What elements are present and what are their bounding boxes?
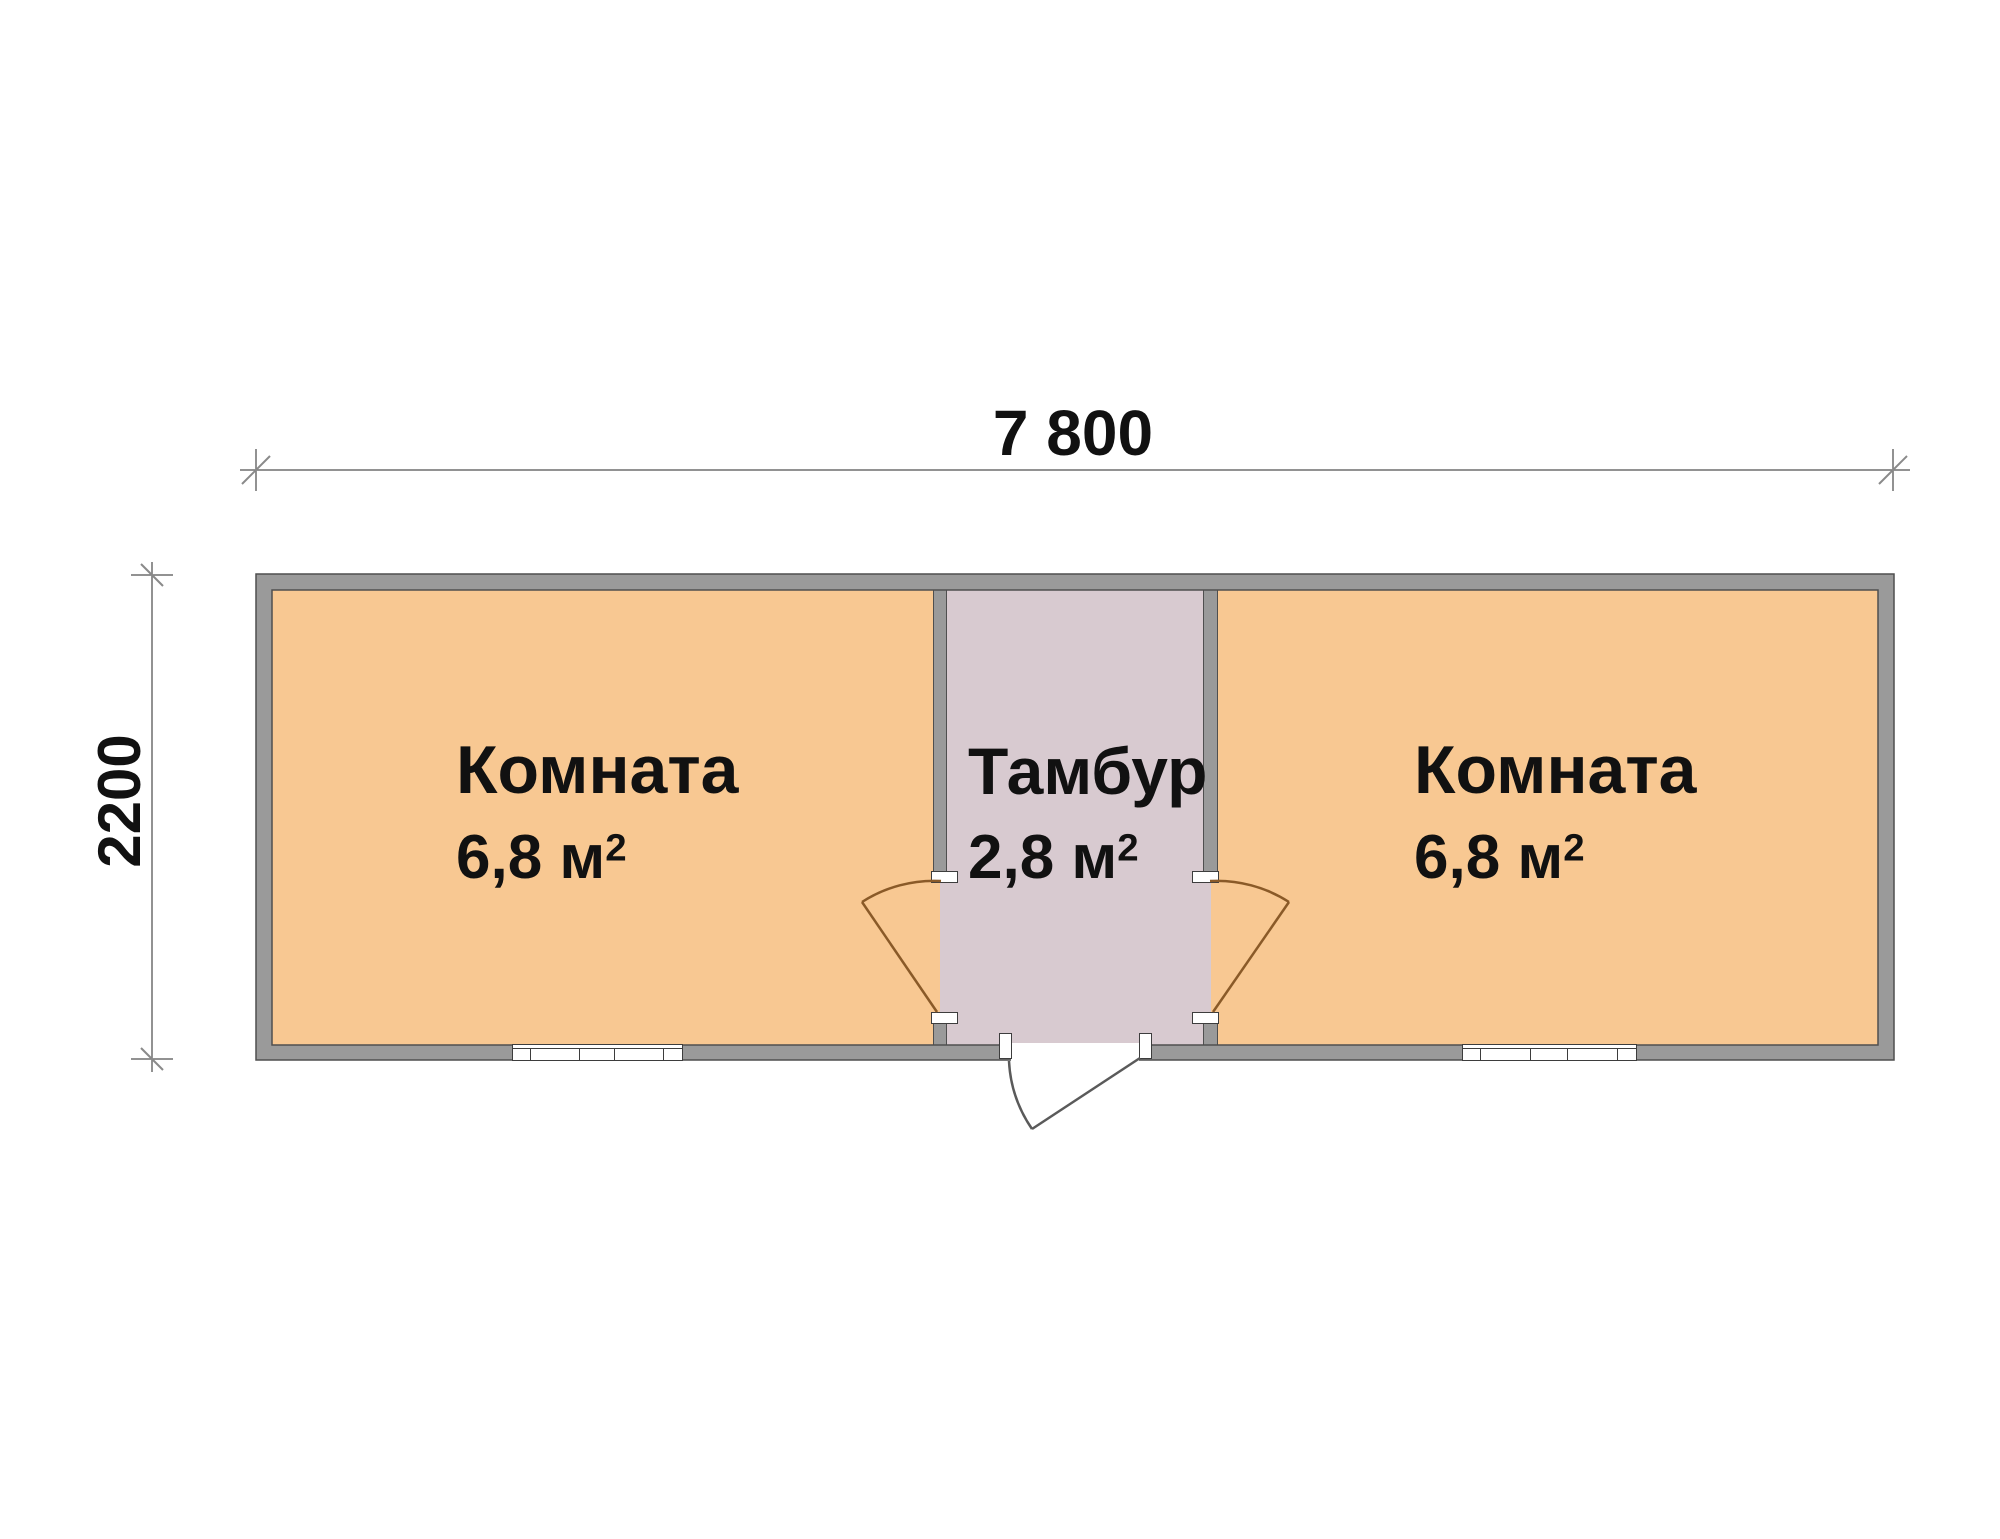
- window-glass-line: [513, 1048, 682, 1049]
- dimension-tick: [141, 564, 163, 586]
- window-mullion: [614, 1048, 615, 1060]
- room-right-name: Комната: [1414, 736, 1696, 804]
- area-superscript: 2: [605, 830, 626, 868]
- vestibule-floor: [940, 590, 1211, 1045]
- room-right-floor: [1211, 590, 1878, 1045]
- door-jamb: [999, 1033, 1012, 1059]
- area-superscript: 2: [1563, 830, 1584, 868]
- door-jamb: [1192, 1012, 1219, 1024]
- window-mullion: [663, 1048, 664, 1060]
- window-mullion: [1617, 1048, 1618, 1060]
- room-left-area: 6,8 м2: [456, 827, 627, 889]
- door-leaf: [1032, 1058, 1140, 1129]
- room-right-area: 6,8 м2: [1414, 827, 1585, 889]
- dimension-tick: [242, 456, 270, 484]
- area-superscript: 2: [1117, 830, 1138, 868]
- dimension-tick: [141, 1048, 163, 1070]
- entry-door-opening: [1011, 1043, 1139, 1062]
- door-jamb: [931, 1012, 958, 1024]
- entry-door-swing: [1009, 1058, 1140, 1129]
- door-jamb: [931, 871, 958, 883]
- window-room-left: [512, 1044, 683, 1061]
- window-room-right: [1462, 1044, 1637, 1061]
- vestibule-name: Тамбур: [968, 738, 1207, 804]
- partition-wall-left-upper: [933, 590, 947, 872]
- door-jamb: [1139, 1033, 1152, 1059]
- window-mullion: [530, 1048, 531, 1060]
- window-mullion: [1530, 1048, 1531, 1060]
- door-jamb: [1192, 871, 1219, 883]
- partition-wall-left-lower: [933, 1023, 947, 1045]
- width-dimension-label: 7 800: [873, 401, 1273, 465]
- area-value: 2,8 м: [968, 823, 1117, 892]
- area-value: 6,8 м: [456, 823, 605, 892]
- room-left-floor: [272, 590, 940, 1045]
- window-mullion: [579, 1048, 580, 1060]
- room-left-name: Комната: [456, 736, 738, 804]
- door-swing-arc: [1009, 1061, 1032, 1129]
- area-value: 6,8 м: [1414, 823, 1563, 892]
- dimension-tick: [1879, 456, 1907, 484]
- window-glass-line: [1463, 1048, 1636, 1049]
- vestibule-area: 2,8 м2: [968, 827, 1139, 889]
- partition-wall-right-upper: [1203, 590, 1218, 872]
- partition-wall-right-lower: [1203, 1023, 1218, 1045]
- window-mullion: [1567, 1048, 1568, 1060]
- window-mullion: [1480, 1048, 1481, 1060]
- height-dimension-label: 2200: [90, 651, 150, 951]
- floor-plan: 7 800 2200 Комната 6,8 м2 Тамбур 2,8 м2 …: [0, 0, 2000, 1539]
